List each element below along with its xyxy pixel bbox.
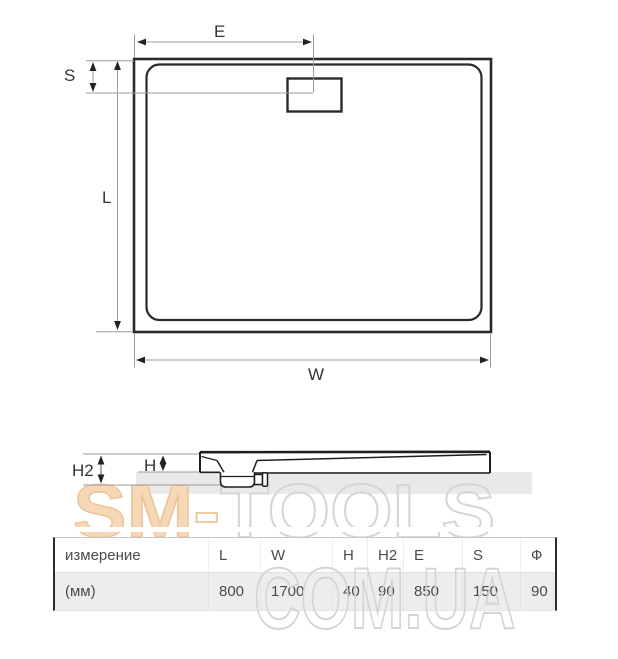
table-cell: 40 [332, 573, 367, 610]
dim-label-l: L [102, 188, 111, 208]
arrow-w-left [136, 357, 145, 364]
table-header-cell: Ф [520, 538, 555, 573]
drain-box [288, 79, 342, 112]
arrow-l-bottom [114, 321, 121, 330]
table-cell: 90 [367, 573, 403, 610]
drain-funnel-right [253, 461, 258, 473]
tray-top-view [134, 59, 491, 332]
table-cell: (мм) [55, 573, 208, 610]
tray-side-view [200, 452, 490, 487]
arrow-h-top [160, 456, 167, 464]
table-header-cell: W [260, 538, 332, 573]
table-cell: 800 [208, 573, 260, 610]
table-header-cell: H2 [367, 538, 403, 573]
arrow-e-right [303, 39, 312, 46]
table-header-cell: H [332, 538, 367, 573]
table-cell: 150 [462, 573, 520, 610]
side-floor-slope-right [257, 455, 487, 461]
arrow-h2-bottom [98, 475, 105, 484]
table-header-cell: S [462, 538, 520, 573]
watermark-white-gap [60, 527, 560, 532]
drain-pipe [255, 475, 263, 485]
dim-label-h: H [144, 456, 156, 476]
technical-drawing [0, 0, 618, 500]
page: SM-TOOLS [0, 0, 618, 659]
dim-label-e: E [214, 22, 225, 42]
arrow-l-top [114, 61, 121, 70]
arrow-h2-top [98, 456, 105, 465]
dim-label-w: W [308, 365, 324, 385]
arrow-h-bottom [160, 463, 167, 471]
arrow-w-right [480, 357, 489, 364]
dim-label-s: S [64, 66, 75, 86]
side-floor-slope-left [202, 457, 218, 461]
drain-funnel-left [217, 461, 224, 473]
drain-trap [221, 472, 255, 487]
arrow-s-bottom [90, 83, 97, 92]
table-header-cell: L [208, 538, 260, 573]
arrow-e-left [137, 39, 146, 46]
table-cell: 850 [403, 573, 462, 610]
dimensions-table: измерение L W H H2 E S Ф (мм) 800 1700 4… [53, 537, 557, 611]
table-header-cell: измерение [55, 538, 208, 573]
table-cell: 1700 [260, 573, 332, 610]
drain-pipe-cap [263, 473, 268, 487]
dim-label-h2: H2 [72, 461, 94, 481]
table-cell: 90 [520, 573, 555, 610]
arrow-s-top [90, 62, 97, 71]
table-header-cell: E [403, 538, 462, 573]
